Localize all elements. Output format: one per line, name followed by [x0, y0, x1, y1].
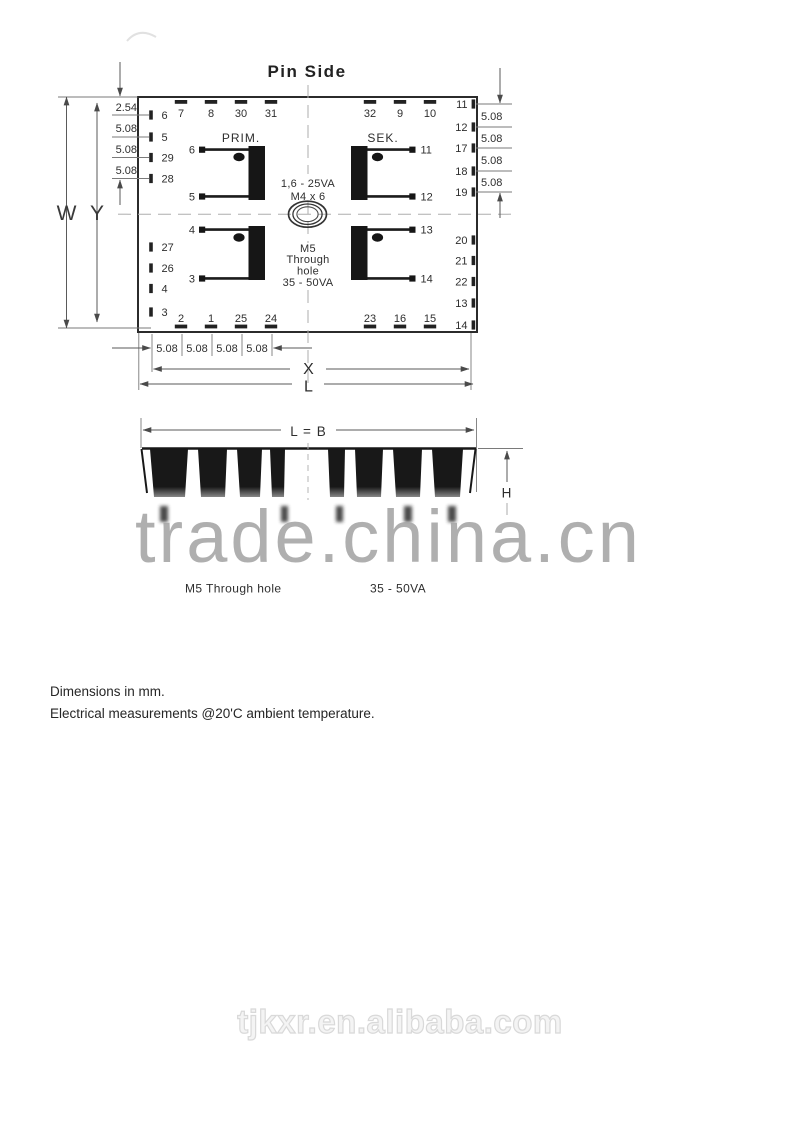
dim-letter-w: W [57, 202, 77, 225]
dim-letter-l: L [304, 379, 313, 396]
pin-number: 5 [162, 132, 168, 144]
dim-value: L = B [290, 424, 326, 439]
note-dimensions: Dimensions in mm. [50, 681, 375, 703]
dim-value: 5.08 [216, 343, 237, 355]
dim-value: 5.08 [481, 133, 502, 145]
right-pin-numbers: 11 12 17 18 19 20 21 22 13 14 [455, 99, 467, 332]
pin-number: 27 [162, 242, 174, 254]
right-pin-bars [472, 99, 476, 329]
lb-dimension: L = B [141, 418, 477, 492]
dim-value: 5.08 [186, 343, 207, 355]
pin-number: 7 [178, 108, 184, 120]
polarity-dot [372, 153, 383, 161]
coil-bottom-left: 4 3 [189, 225, 265, 286]
left-pin-bars [149, 110, 153, 316]
pin-number: 3 [162, 307, 168, 319]
pin-number: 24 [265, 313, 277, 325]
pin-number: 31 [265, 108, 277, 120]
pin-number: 21 [455, 256, 467, 268]
pin-number: 19 [455, 187, 467, 199]
pin-number: 15 [424, 313, 436, 325]
pin-number: 3 [189, 274, 195, 286]
pin-number: 5 [189, 192, 195, 204]
mount-note: hole [297, 266, 319, 278]
polarity-dot [372, 233, 383, 241]
pin-number: 25 [235, 313, 247, 325]
pin-number: 9 [397, 108, 403, 120]
dim-value: 5.08 [116, 165, 137, 177]
pin-number: 2 [178, 313, 184, 325]
page-title: Pin Side [267, 62, 346, 81]
pin-number: 30 [235, 108, 247, 120]
pin-number: 10 [424, 108, 436, 120]
coil-top-left: 6 5 [189, 145, 265, 204]
polarity-dot [233, 233, 244, 241]
pin-number: 11 [456, 99, 467, 111]
pin-number: 22 [455, 277, 467, 289]
pin-side-diagram: Pin Side 7 8 30 31 32 9 [57, 33, 512, 396]
dim-value: 5.08 [246, 343, 267, 355]
bottom-dimension-rows: 5.08 5.08 5.08 5.08 X L [112, 333, 473, 396]
dim-letter-x: X [303, 361, 314, 378]
mount-note: 35 - 50VA [283, 277, 334, 289]
pin-number: 13 [455, 298, 467, 310]
pin-blocks [150, 449, 463, 497]
pin-number: 13 [421, 225, 433, 237]
note-electrical: Electrical measurements @20'C ambient te… [50, 703, 375, 725]
pin-number: 1 [208, 313, 214, 325]
coil-top-right: 11 12 [351, 145, 433, 204]
datasheet-page: { "page": { "title": "Pin Side", "notes"… [0, 0, 800, 1131]
left-dimension-stack: 2.54 5.08 5.08 5.08 [58, 62, 149, 205]
primary-winding-label: PRIM. [222, 131, 260, 145]
screw-note: M4 x 6 [291, 191, 326, 203]
pin-number: 6 [162, 110, 168, 122]
pin-number: 14 [421, 274, 433, 286]
alibaba-watermark: tjkxr.en.alibaba.com [0, 1003, 800, 1041]
pin-number: 28 [162, 174, 174, 186]
dim-value: 5.08 [481, 155, 502, 167]
pin-number: 26 [162, 263, 174, 275]
dim-letter-y: Y [90, 202, 104, 225]
bottom-pin-numbers: 2 1 25 24 23 16 15 [178, 313, 436, 325]
trade-china-watermark: trade.china.cn [135, 500, 642, 574]
pin-number: 6 [189, 145, 195, 157]
mount-caption: M5 Through hole [185, 582, 282, 596]
notes-block: Dimensions in mm. Electrical measurement… [50, 681, 375, 725]
dim-value: 2.54 [116, 102, 137, 114]
pin-number: 16 [394, 313, 406, 325]
pin-number: 29 [162, 153, 174, 165]
power-caption: 35 - 50VA [370, 582, 426, 596]
pin-number: 23 [364, 313, 376, 325]
pin-number: 20 [455, 235, 467, 247]
top-pin-numbers: 7 8 30 31 32 9 10 [178, 108, 436, 120]
pin-number: 4 [189, 225, 195, 237]
body-left-end [142, 449, 148, 493]
scan-artifact [127, 33, 156, 41]
bottom-pin-bars [175, 325, 436, 329]
pin-number: 4 [162, 284, 168, 296]
dim-value: 5.08 [116, 144, 137, 156]
polarity-dot [233, 153, 244, 161]
coil-bottom-right: 13 14 [351, 225, 433, 286]
right-dimension-stack: 5.08 5.08 5.08 5.08 [476, 68, 512, 218]
rating-note: 1,6 - 25VA [281, 178, 336, 190]
pin-number: 32 [364, 108, 376, 120]
pin-number: 8 [208, 108, 214, 120]
dim-value: 5.08 [481, 177, 502, 189]
pin-number: 11 [421, 145, 432, 157]
dim-value: 5.08 [481, 111, 502, 123]
dim-value: 5.08 [116, 123, 137, 135]
secondary-winding-label: SEK. [367, 131, 398, 145]
pin-number: 17 [455, 143, 467, 155]
pin-number: 12 [455, 122, 467, 134]
pin-number: 12 [421, 192, 433, 204]
pin-number: 14 [455, 320, 467, 332]
mount-note: Through [286, 254, 329, 266]
top-pin-bars [175, 100, 436, 104]
pin-number: 18 [455, 166, 467, 178]
dim-value: 5.08 [156, 343, 177, 355]
body-right-end [470, 449, 476, 493]
